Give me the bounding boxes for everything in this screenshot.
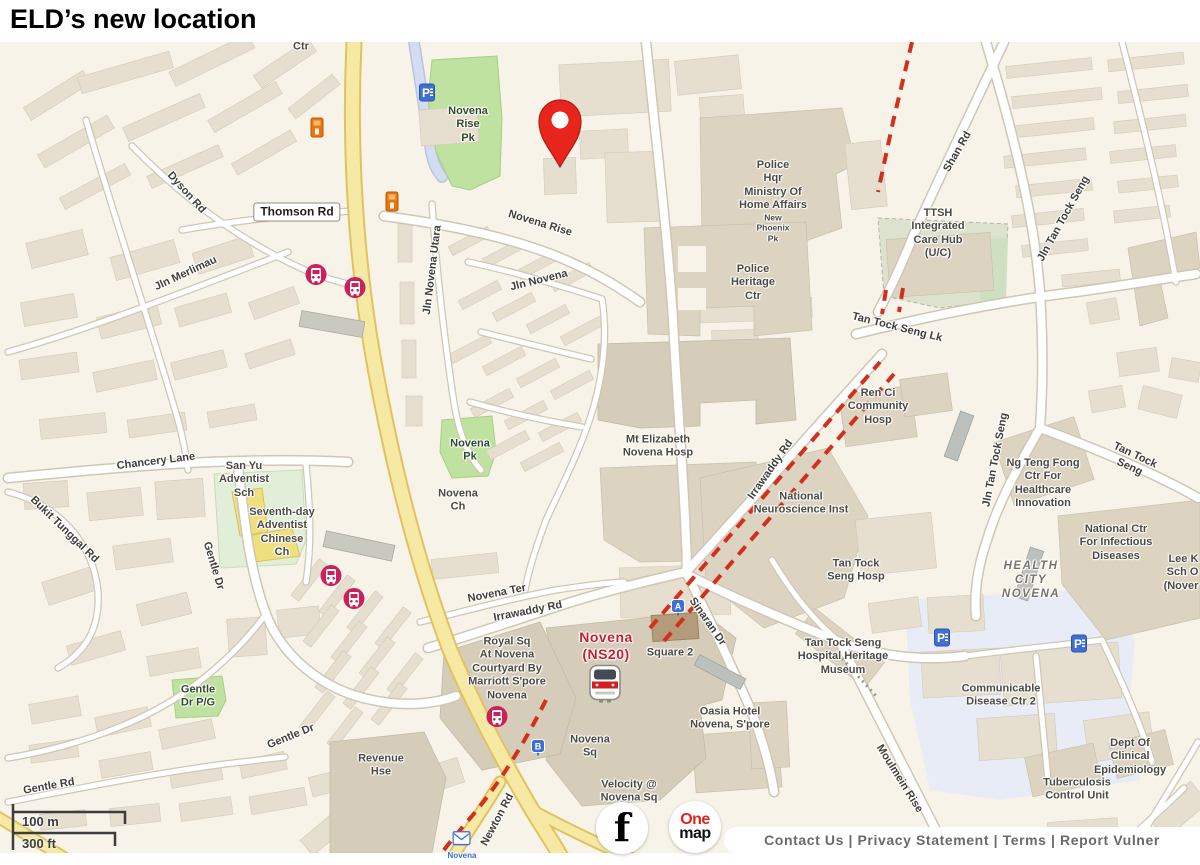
scale-metric-label: 100 m [22,814,59,829]
scale-bar [0,795,140,855]
map-canvas [0,0,1200,865]
footer-links-bar[interactable]: Contact Us | Privacy Statement | Terms |… [724,827,1200,853]
footer-links[interactable]: Contact Us | Privacy Statement | Terms |… [764,832,1160,848]
onemap-logo[interactable]: One map [669,801,721,853]
location-pin-marker[interactable] [536,96,584,172]
scale-imperial-label: 300 ft [22,836,56,851]
facebook-icon[interactable]: f [596,802,648,854]
map[interactable]: CtrNovena Rise PkDyson RdThomson RdNoven… [0,0,1200,865]
screenshot-root: ELD’s new location [0,0,1200,865]
